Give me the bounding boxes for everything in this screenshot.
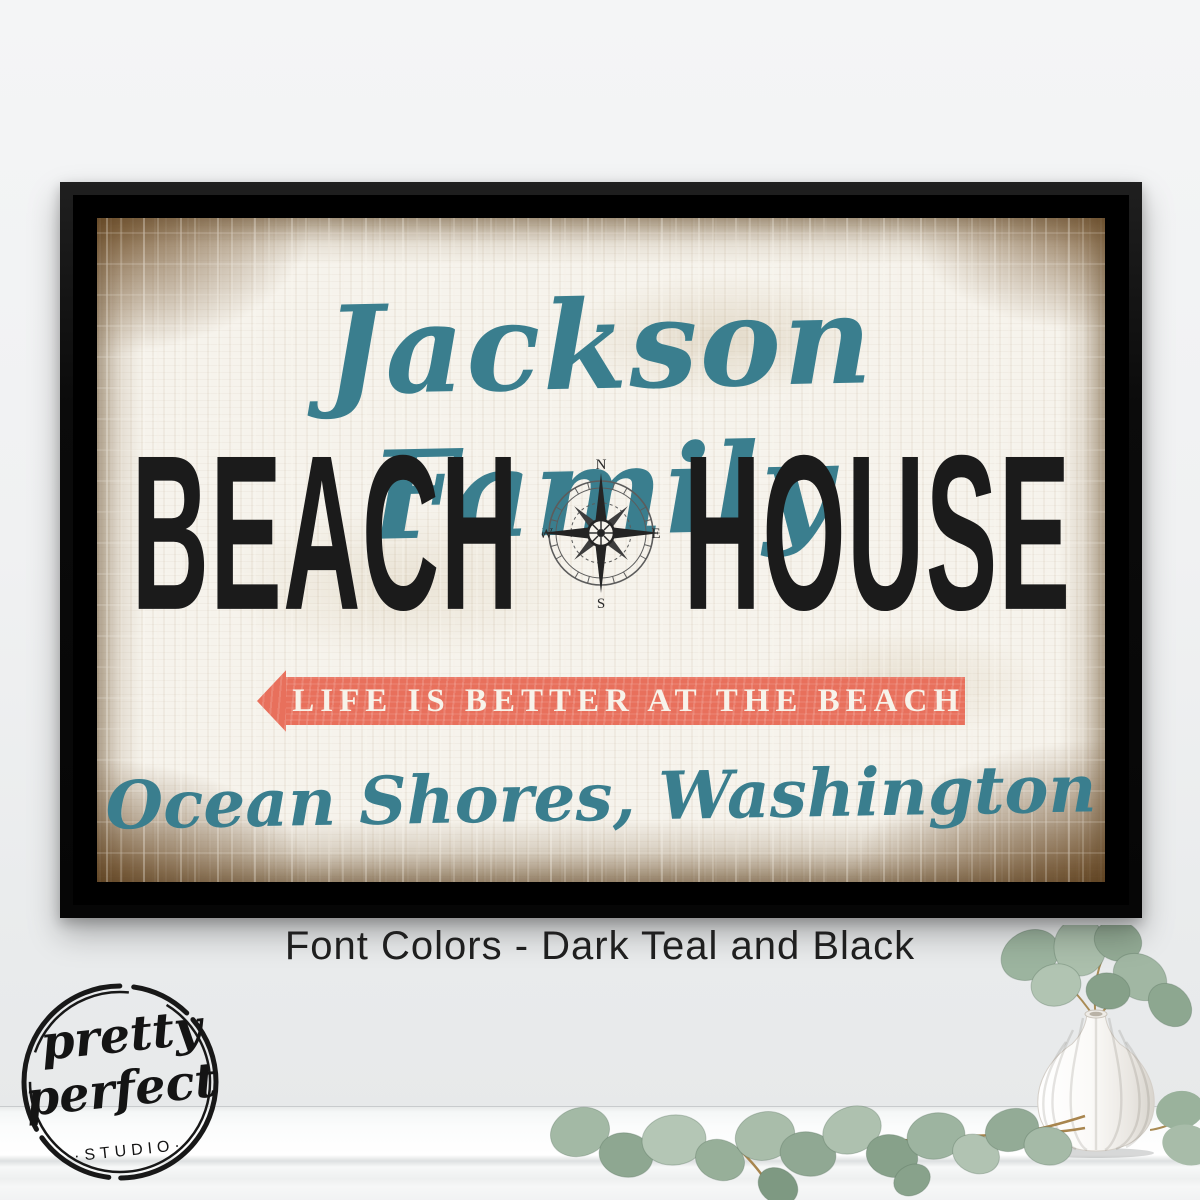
sign-frame: Jackson Family BEACH [60,182,1142,918]
banner-text: LIFE IS BETTER AT THE BEACH [286,683,965,720]
location-text: Ocean Shores, Washington [97,749,1105,846]
compass-east-label: E [651,526,660,542]
eucalyptus-branch-icon [540,1060,1200,1200]
logo-studio-label: ·STUDIO· [73,1137,185,1166]
compass-north-label: N [596,457,607,473]
sign-canvas: Jackson Family BEACH [97,218,1105,882]
caption-text: Font Colors - Dark Teal and Black [0,924,1200,969]
beach-word: BEACH [131,423,519,644]
banner-arrow: LIFE IS BETTER AT THE BEACH [257,670,965,732]
compass-rose-icon: N E S W [542,453,660,613]
compass-west-label: W [542,526,554,542]
arrow-shaft: LIFE IS BETTER AT THE BEACH [286,677,965,725]
pretty-perfect-studio-logo: pretty perfect ·STUDIO· [8,980,234,1188]
house-word: HOUSE [683,423,1071,644]
frame-inner-shadow: Jackson Family BEACH [73,195,1129,905]
title-row: BEACH [97,453,1105,613]
compass-south-label: S [597,596,605,612]
product-photo: Jackson Family BEACH [0,0,1200,1200]
eucalyptus-leaves [544,1097,1074,1200]
left-arrow-icon [257,670,286,732]
